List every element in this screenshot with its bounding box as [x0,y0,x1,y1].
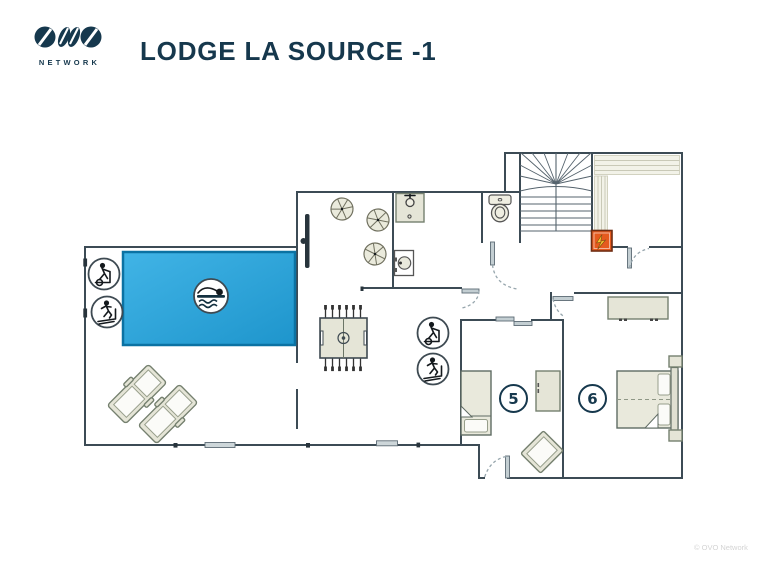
single-bed [461,371,491,435]
treadmill-icon [92,297,123,328]
floor-plan-drawing [0,0,767,575]
storage-door-leaf [628,248,632,268]
plant [360,239,390,269]
swimming-pool [123,252,295,345]
swimmer-icon [194,279,228,313]
bedroom5-number-badge: 5 [499,384,528,413]
bedroom6-door-leaf [553,297,573,301]
elliptical-trainer-icon [89,259,120,290]
plant [365,207,390,232]
utility-sink [396,194,424,223]
treadmill-icon [418,354,449,385]
elliptical-trainer-icon [418,318,449,349]
exterior-door-leaf [506,456,510,478]
washing-machine [395,251,414,276]
foosball-table [320,305,367,371]
wardrobe [536,371,560,411]
hall-door-leaf [462,289,479,293]
double-bed [617,368,678,432]
staircase [520,153,592,231]
nightstand [669,356,682,367]
sun-loungers [105,362,200,446]
copyright-note: © OVO Network [694,543,748,552]
wc-door-leaf [491,242,495,265]
armchair [521,431,563,473]
nightstand [669,430,682,441]
wardrobe [608,297,668,321]
plant [329,196,354,221]
electrical-panel-icon [592,231,613,252]
shelving [595,156,680,231]
floor-plan-page: NETWORK LODGE LA SOURCE -1 [0,0,767,575]
bedroom6-number-badge: 6 [578,384,607,413]
bedroom5-sliding-door [496,317,514,321]
toilet [489,195,511,222]
